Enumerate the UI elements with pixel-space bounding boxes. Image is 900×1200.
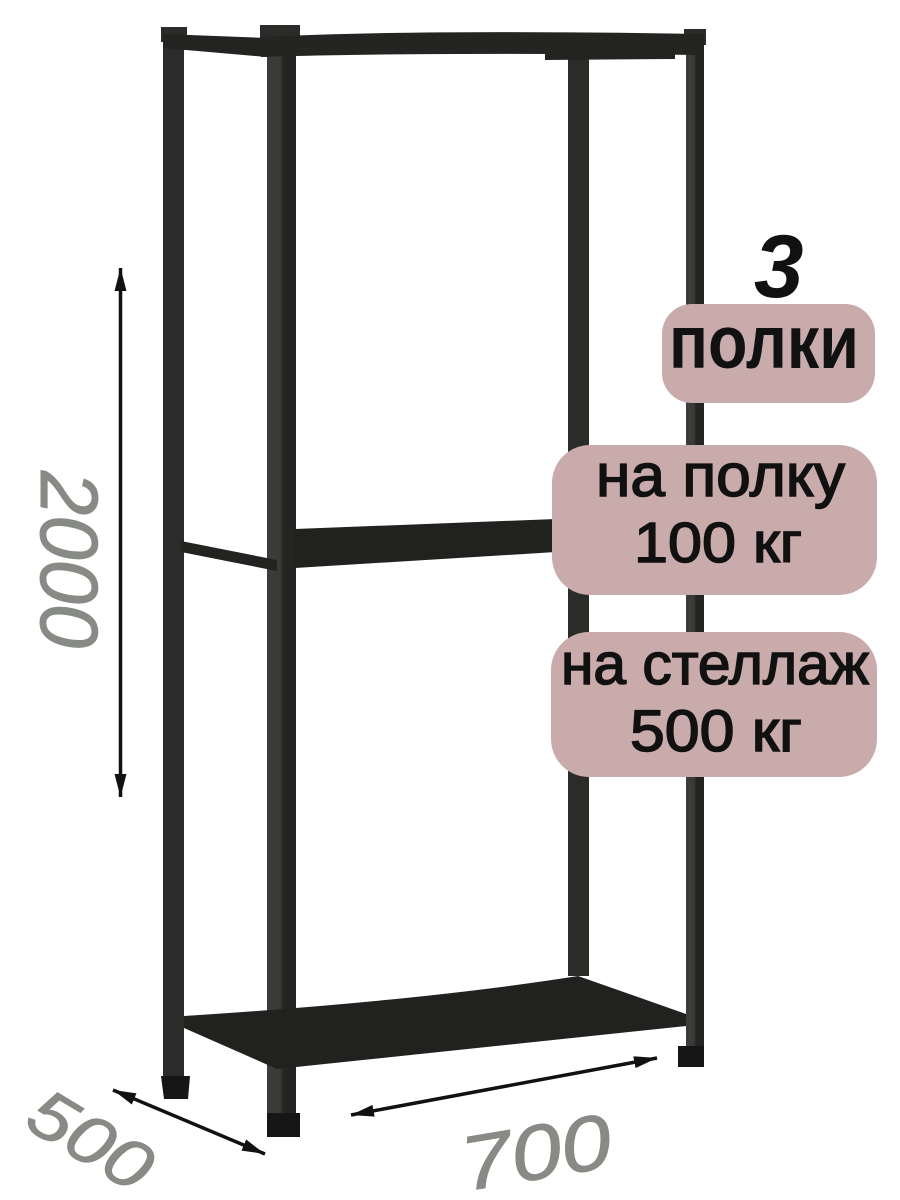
svg-text:на полку: на полку xyxy=(596,442,845,509)
svg-text:700: 700 xyxy=(455,1098,618,1200)
svg-text:500 кг: 500 кг xyxy=(630,699,802,764)
svg-text:100 кг: 100 кг xyxy=(634,511,802,575)
svg-text:500: 500 xyxy=(14,1074,166,1200)
svg-text:2000: 2000 xyxy=(23,470,114,648)
svg-text:на стеллаж: на стеллаж xyxy=(561,632,869,697)
svg-text:полки: полки xyxy=(669,300,859,384)
